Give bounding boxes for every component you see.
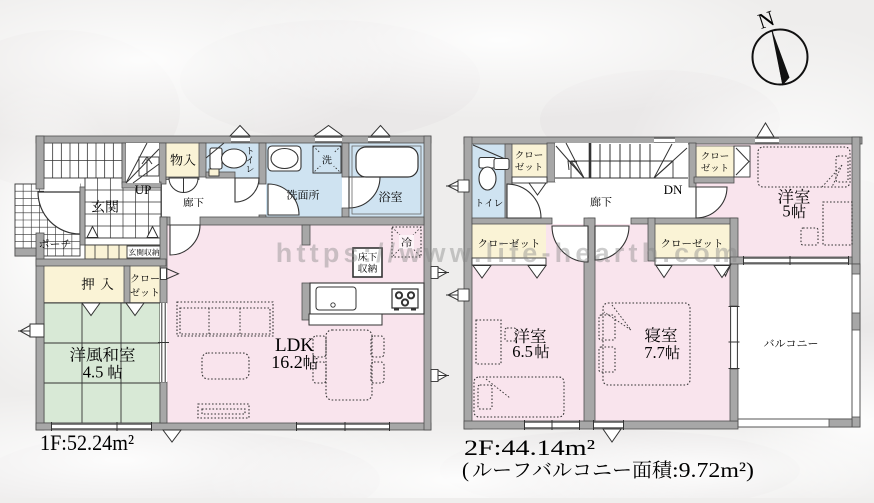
svg-text::9.72m²): :9.72m²) [672, 458, 754, 482]
svg-text:(: ( [462, 458, 469, 482]
svg-text:16.2: 16.2 [271, 352, 303, 372]
svg-text:https://www.life-hearth.com: https://www.life-hearth.com [276, 238, 742, 268]
svg-text:7.7: 7.7 [644, 343, 665, 362]
svg-text:4.5: 4.5 [83, 363, 104, 382]
svg-text:5: 5 [782, 202, 790, 221]
svg-text:1F:52.24m²: 1F:52.24m² [40, 430, 134, 455]
svg-text:6.5: 6.5 [512, 342, 533, 361]
svg-text:UP: UP [135, 182, 152, 197]
svg-text:DN: DN [664, 182, 683, 197]
svg-text:2F:44.14m²: 2F:44.14m² [464, 435, 596, 460]
